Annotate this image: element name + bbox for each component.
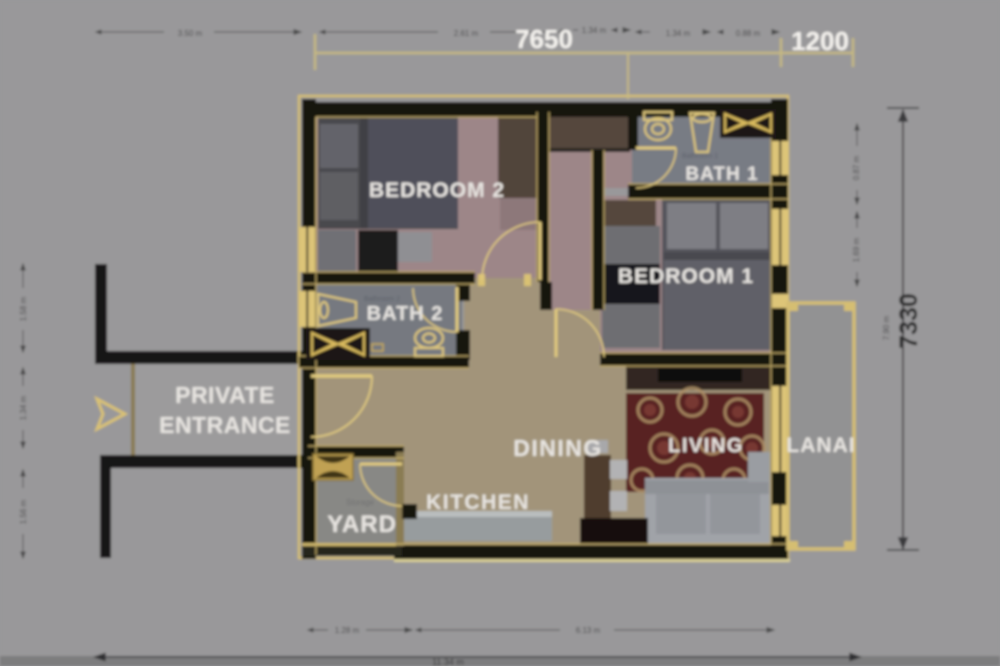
svg-text:2.61 m: 2.61 m [454,29,479,38]
svg-text:1.28 m: 1.28 m [335,626,360,635]
svg-text:1.58 m: 1.58 m [19,296,28,321]
svg-text:7330: 7330 [895,293,923,349]
svg-text:6.13 m: 6.13 m [576,626,601,635]
svg-text:1.34 m: 1.34 m [19,395,28,420]
svg-text:KITCHEN: KITCHEN [426,491,530,514]
svg-text:Bathroom 2: Bathroom 2 [364,296,400,303]
svg-text:1200: 1200 [791,26,849,56]
svg-text:LIVING: LIVING [668,435,744,457]
svg-text:1.69 m: 1.69 m [852,237,861,262]
svg-text:ENTRANCE: ENTRANCE [159,412,291,438]
svg-text:Storage: Storage [346,498,375,507]
svg-text:BEDROOM 1: BEDROOM 1 [618,265,754,288]
svg-text:7650: 7650 [515,24,573,54]
svg-text:BATH 2: BATH 2 [367,303,444,325]
svg-text:YARD: YARD [327,511,397,538]
svg-text:11.34 m: 11.34 m [432,657,464,666]
svg-text:0.88 m: 0.88 m [736,29,761,38]
svg-text:1.34 m: 1.34 m [666,29,691,38]
svg-text:1.34 m: 1.34 m [582,26,607,35]
svg-text:DINING: DINING [513,435,603,461]
svg-text:BATH 1: BATH 1 [685,164,758,185]
svg-text:BEDROOM 2: BEDROOM 2 [369,179,505,202]
svg-text:PRIVATE: PRIVATE [175,382,275,408]
svg-text:3.50 m: 3.50 m [178,29,203,38]
svg-text:LANAI: LANAI [786,434,855,457]
svg-text:Bathroom 1: Bathroom 1 [682,153,718,160]
svg-text:0.87 m: 0.87 m [852,155,861,180]
svg-text:7.90 m: 7.90 m [882,315,891,340]
svg-text:1.56 m: 1.56 m [19,499,28,524]
